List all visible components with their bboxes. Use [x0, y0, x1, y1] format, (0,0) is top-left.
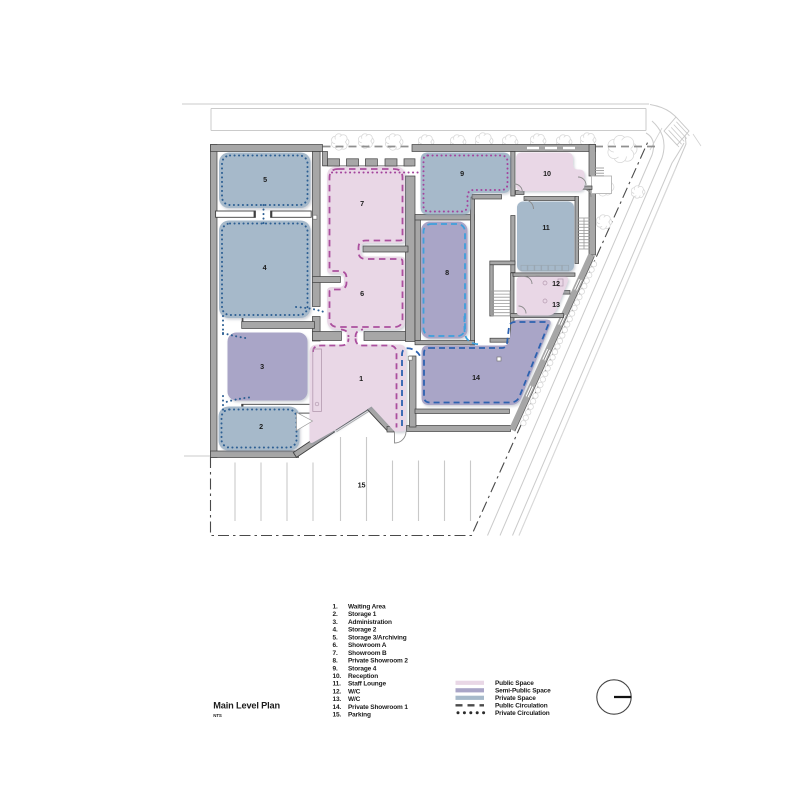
- svg-text:15.: 15.: [333, 712, 342, 719]
- svg-text:14: 14: [472, 373, 480, 382]
- svg-text:Private Showroom 1: Private Showroom 1: [348, 704, 408, 711]
- svg-text:13: 13: [552, 300, 560, 309]
- svg-text:Storage 2: Storage 2: [348, 627, 377, 634]
- svg-text:Storage 4: Storage 4: [348, 665, 377, 672]
- svg-text:6: 6: [360, 289, 364, 298]
- svg-text:8: 8: [445, 268, 449, 277]
- svg-text:12: 12: [552, 279, 560, 288]
- svg-text:Private Circulation: Private Circulation: [495, 710, 550, 717]
- svg-text:15: 15: [358, 481, 366, 490]
- svg-text:W/C: W/C: [348, 688, 361, 695]
- svg-text:2.: 2.: [333, 611, 338, 618]
- svg-text:9: 9: [460, 169, 464, 178]
- svg-text:Staff Lounge: Staff Lounge: [348, 681, 386, 688]
- svg-text:Waiting Area: Waiting Area: [348, 604, 386, 611]
- svg-text:2: 2: [259, 422, 263, 431]
- svg-text:13.: 13.: [333, 696, 342, 703]
- svg-text:5.: 5.: [333, 634, 338, 641]
- svg-text:Private Showroom 2: Private Showroom 2: [348, 658, 408, 665]
- svg-text:5: 5: [263, 175, 267, 184]
- svg-text:3: 3: [260, 362, 264, 371]
- svg-text:Reception: Reception: [348, 673, 378, 680]
- svg-text:6.: 6.: [333, 642, 338, 649]
- svg-text:8.: 8.: [333, 658, 338, 665]
- svg-text:11: 11: [542, 223, 549, 232]
- svg-text:Showroom A: Showroom A: [348, 642, 387, 649]
- svg-text:Main Level Plan: Main Level Plan: [213, 701, 280, 711]
- svg-text:Storage 1: Storage 1: [348, 611, 377, 618]
- svg-text:7.: 7.: [333, 650, 338, 657]
- svg-text:Public Circulation: Public Circulation: [495, 703, 548, 710]
- svg-text:Private Space: Private Space: [495, 695, 536, 702]
- svg-text:Public Space: Public Space: [495, 680, 534, 687]
- svg-text:10: 10: [543, 169, 551, 178]
- svg-text:Parking: Parking: [348, 712, 371, 719]
- svg-text:1.: 1.: [333, 604, 338, 611]
- svg-text:11.: 11.: [333, 681, 342, 688]
- svg-text:Storage 3/Archiving: Storage 3/Archiving: [348, 634, 407, 641]
- svg-text:12.: 12.: [333, 688, 342, 695]
- svg-text:NTS: NTS: [213, 713, 222, 718]
- svg-text:14.: 14.: [333, 704, 342, 711]
- svg-text:Semi-Public Space: Semi-Public Space: [495, 688, 551, 695]
- svg-text:4: 4: [263, 263, 267, 272]
- svg-text:10.: 10.: [333, 673, 342, 680]
- svg-text:7: 7: [360, 199, 364, 208]
- svg-text:Showroom B: Showroom B: [348, 650, 387, 657]
- svg-text:W/C: W/C: [348, 696, 361, 703]
- svg-text:4.: 4.: [333, 627, 338, 634]
- svg-text:1: 1: [359, 374, 363, 383]
- svg-text:Administration: Administration: [348, 619, 392, 626]
- svg-text:3.: 3.: [333, 619, 338, 626]
- svg-text:9.: 9.: [333, 665, 338, 672]
